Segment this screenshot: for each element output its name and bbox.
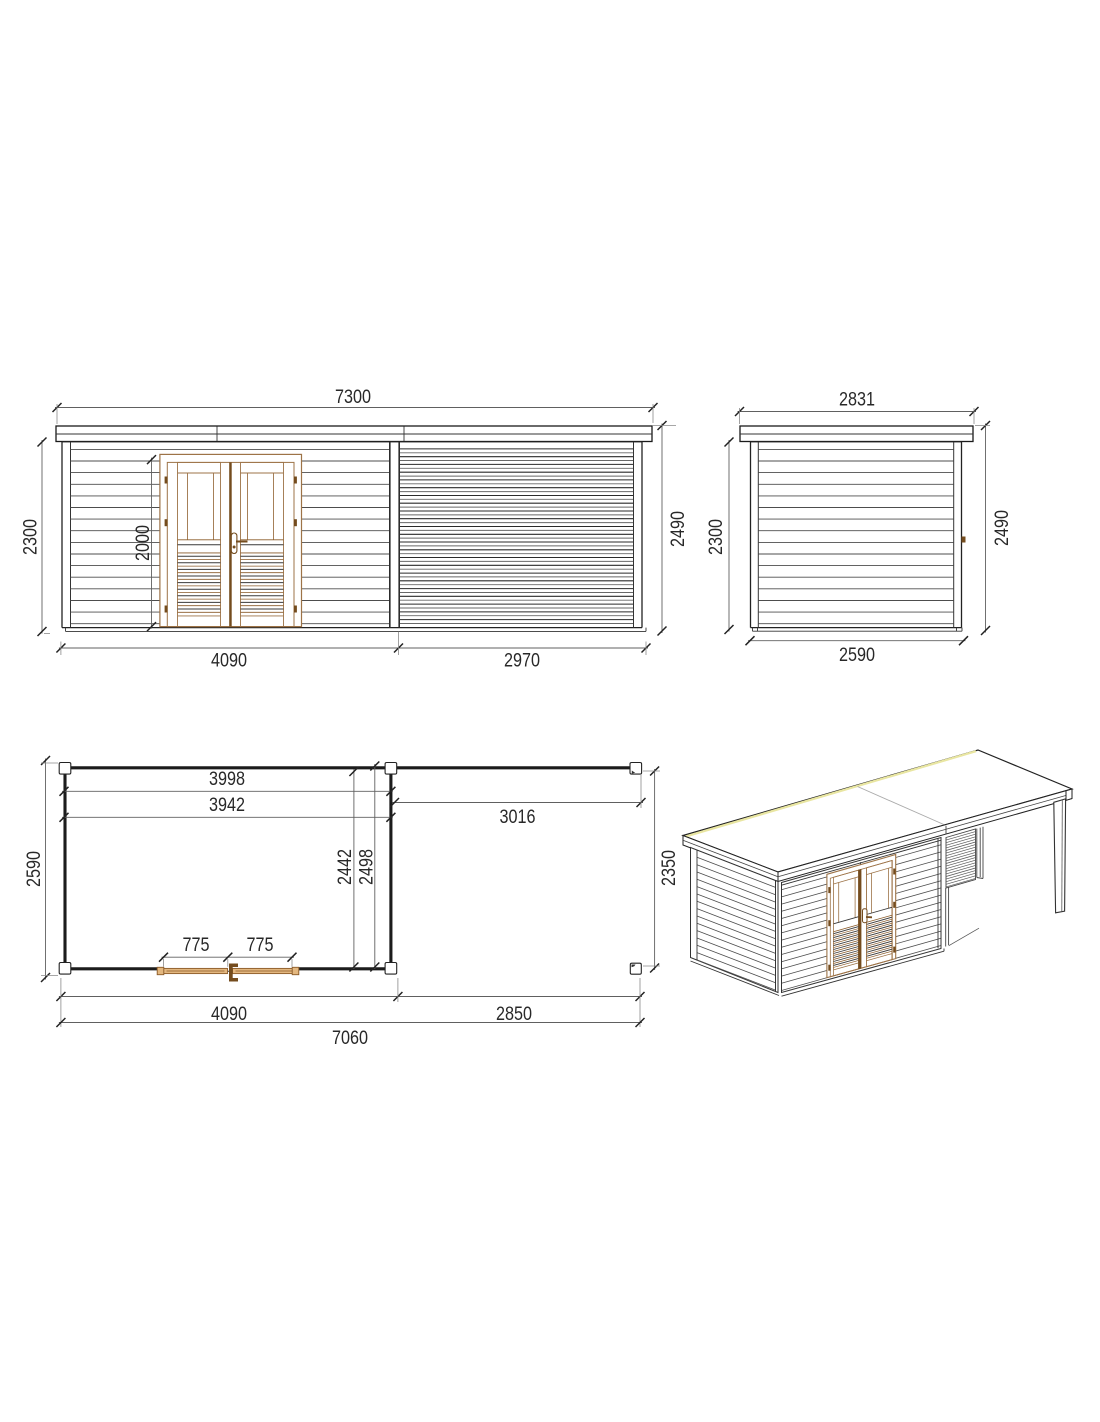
svg-text:3998: 3998: [209, 768, 245, 790]
svg-text:2850: 2850: [496, 1003, 532, 1025]
svg-text:3942: 3942: [209, 794, 245, 816]
svg-text:2442: 2442: [334, 849, 356, 885]
svg-text:2590: 2590: [23, 851, 45, 887]
svg-text:7300: 7300: [335, 386, 371, 408]
svg-text:775: 775: [183, 934, 210, 956]
svg-text:2490: 2490: [667, 511, 689, 547]
svg-text:3016: 3016: [500, 806, 536, 828]
svg-text:4090: 4090: [211, 650, 247, 672]
svg-text:2490: 2490: [991, 510, 1013, 546]
svg-text:775: 775: [247, 934, 274, 956]
svg-text:7060: 7060: [332, 1027, 368, 1049]
svg-text:2498: 2498: [356, 849, 378, 885]
svg-text:2350: 2350: [658, 850, 680, 886]
svg-text:4090: 4090: [211, 1003, 247, 1025]
svg-text:2970: 2970: [504, 650, 540, 672]
svg-text:2000: 2000: [132, 525, 154, 561]
svg-text:2300: 2300: [20, 519, 42, 555]
svg-text:2831: 2831: [839, 389, 875, 411]
svg-text:2590: 2590: [839, 644, 875, 666]
svg-text:2300: 2300: [705, 519, 727, 555]
